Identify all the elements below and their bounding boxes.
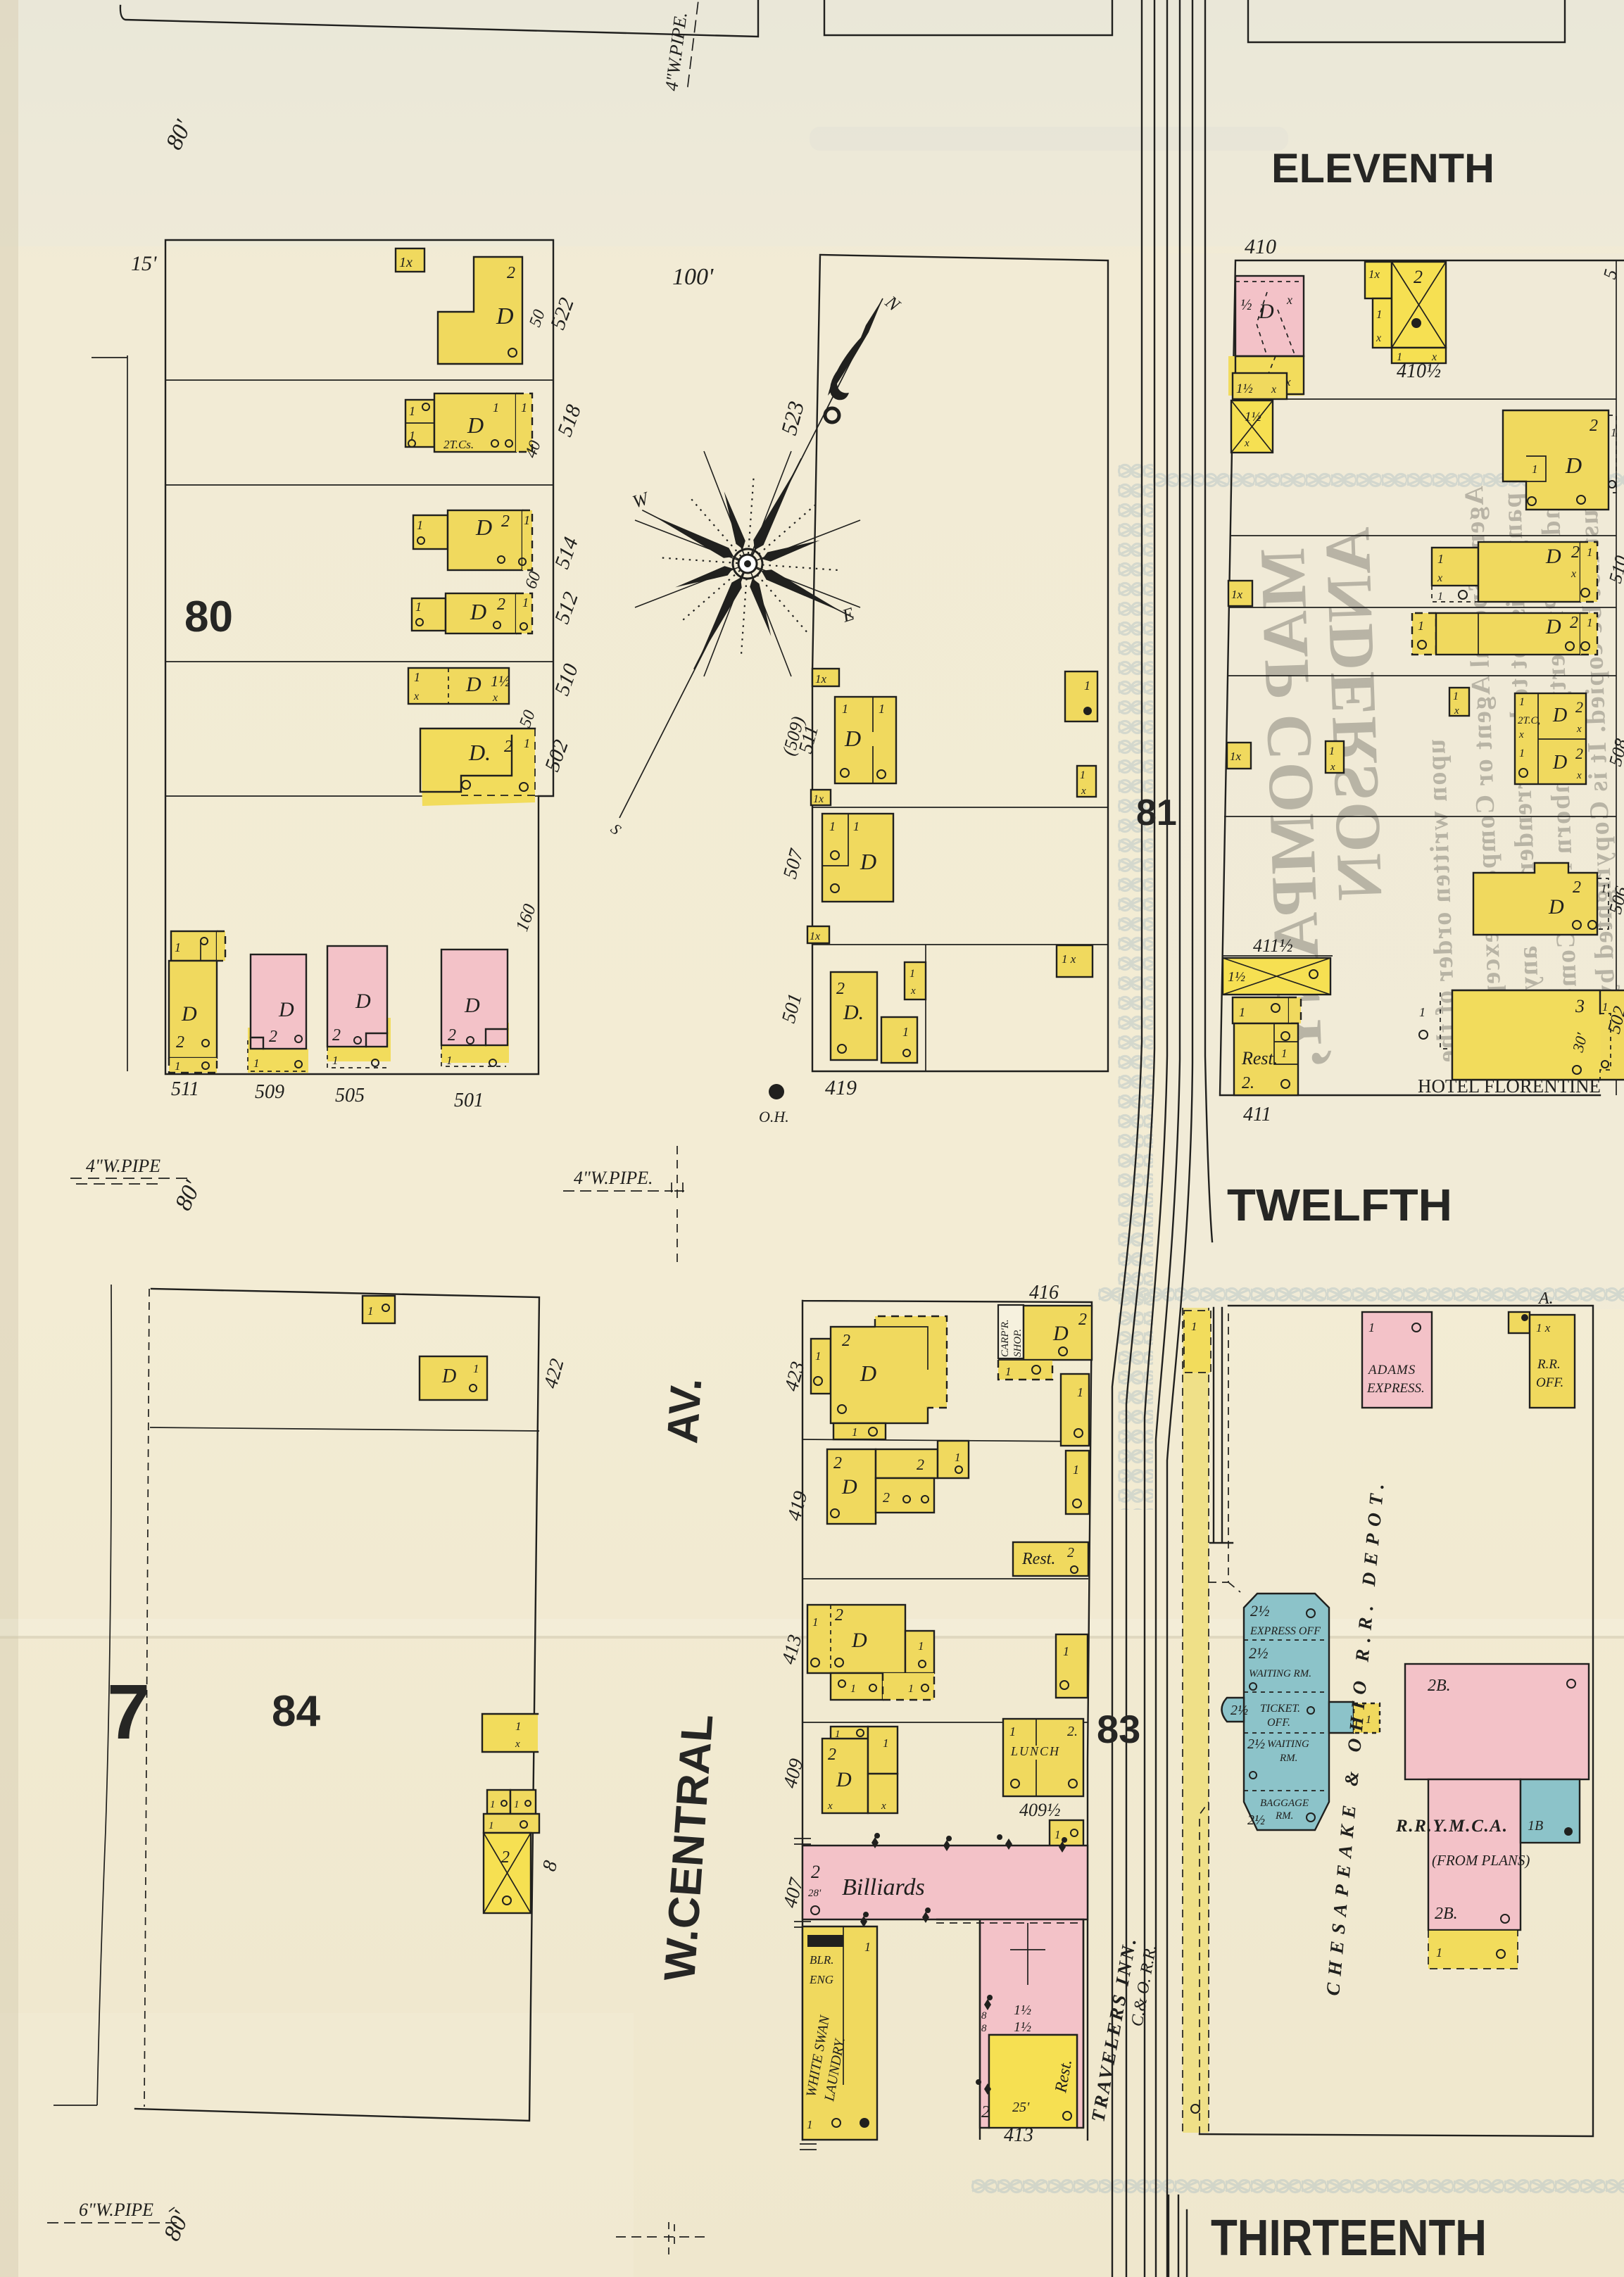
svg-text:D: D xyxy=(355,990,371,1013)
svg-text:511: 511 xyxy=(171,1078,199,1100)
svg-text:RM.: RM. xyxy=(1275,1810,1293,1822)
svg-text:1: 1 xyxy=(842,702,848,716)
svg-text:2: 2 xyxy=(1575,698,1583,716)
svg-text:2.: 2. xyxy=(1242,1074,1254,1092)
svg-text:1: 1 xyxy=(955,1451,961,1464)
svg-text:ENG: ENG xyxy=(809,1973,833,1986)
svg-text:BAGGAGE: BAGGAGE xyxy=(1260,1798,1309,1809)
svg-text:1: 1 xyxy=(1519,696,1525,708)
svg-text:1: 1 xyxy=(1073,1463,1079,1477)
svg-text:ELEVENTH: ELEVENTH xyxy=(1271,146,1494,191)
svg-text:1: 1 xyxy=(1437,591,1443,603)
svg-text:2B.: 2B. xyxy=(1428,1677,1451,1695)
svg-text:1: 1 xyxy=(1084,679,1090,693)
svg-text:411½: 411½ xyxy=(1253,935,1293,956)
svg-text:D: D xyxy=(860,849,876,874)
svg-text:2: 2 xyxy=(1570,614,1578,632)
svg-text:TWELFTH: TWELFTH xyxy=(1227,1180,1452,1230)
svg-text:THIRTEENTH: THIRTEENTH xyxy=(1211,2210,1487,2266)
svg-text:1: 1 xyxy=(1437,552,1444,566)
svg-text:1: 1 xyxy=(522,595,529,610)
svg-text:2: 2 xyxy=(504,738,512,756)
svg-text:1: 1 xyxy=(1419,1005,1425,1019)
svg-text:2½: 2½ xyxy=(1250,1602,1270,1620)
svg-text:R.R.Y.M.C.A.: R.R.Y.M.C.A. xyxy=(1395,1817,1507,1836)
svg-text:D: D xyxy=(1565,453,1582,478)
svg-text:1: 1 xyxy=(367,1304,374,1318)
svg-text:100': 100' xyxy=(672,264,714,290)
svg-text:1x: 1x xyxy=(813,793,824,805)
svg-text:D: D xyxy=(475,515,492,540)
svg-text:2T.C,: 2T.C, xyxy=(1518,715,1540,726)
svg-text:D: D xyxy=(464,994,480,1017)
svg-text:1 x: 1 x xyxy=(1062,952,1076,966)
svg-text:1: 1 xyxy=(852,1425,858,1439)
svg-text:505: 505 xyxy=(335,1085,365,1106)
svg-text:409½: 409½ xyxy=(1019,1800,1061,1820)
svg-text:1: 1 xyxy=(446,1054,453,1067)
svg-text:1: 1 xyxy=(1009,1724,1016,1739)
svg-text:D: D xyxy=(181,1002,197,1026)
svg-text:D: D xyxy=(836,1768,852,1791)
svg-text:4"W.PIPE: 4"W.PIPE xyxy=(86,1156,160,1176)
svg-text:1: 1 xyxy=(1191,1320,1197,1333)
svg-text:D.: D. xyxy=(843,1001,864,1024)
svg-text:2: 2 xyxy=(835,1606,843,1625)
svg-text:OFF.: OFF. xyxy=(1267,1717,1290,1729)
svg-text:1: 1 xyxy=(332,1054,339,1067)
svg-text:1: 1 xyxy=(850,1683,856,1695)
svg-text:1: 1 xyxy=(1418,619,1424,633)
svg-text:(FROM PLANS): (FROM PLANS) xyxy=(1432,1852,1530,1869)
svg-text:501: 501 xyxy=(454,1090,484,1111)
svg-text:1½: 1½ xyxy=(1014,2002,1031,2018)
svg-text:1: 1 xyxy=(1376,308,1383,321)
svg-text:419: 419 xyxy=(825,1076,857,1099)
svg-text:D: D xyxy=(496,303,514,329)
svg-text:2: 2 xyxy=(176,1033,184,1052)
svg-text:2: 2 xyxy=(501,1848,510,1867)
svg-text:1: 1 xyxy=(473,1362,479,1375)
svg-text:1: 1 xyxy=(1005,1365,1012,1378)
svg-text:A.: A. xyxy=(1537,1289,1554,1308)
svg-text:1: 1 xyxy=(417,518,423,532)
svg-text:2½: 2½ xyxy=(1247,1812,1265,1828)
svg-text:x: x xyxy=(1576,724,1582,735)
svg-text:1: 1 xyxy=(414,670,420,684)
svg-text:1: 1 xyxy=(1587,616,1593,629)
svg-text:6"W.PIPE: 6"W.PIPE xyxy=(79,2200,153,2220)
svg-text:x: x xyxy=(1576,770,1582,781)
svg-text:1: 1 xyxy=(1602,1000,1609,1014)
svg-text:D: D xyxy=(841,1475,857,1499)
svg-text:1: 1 xyxy=(253,1056,260,1070)
svg-text:1: 1 xyxy=(835,1729,841,1740)
svg-text:x: x xyxy=(1437,572,1442,584)
svg-text:1: 1 xyxy=(409,404,415,418)
svg-text:1x: 1x xyxy=(399,255,413,270)
svg-text:x: x xyxy=(1376,332,1381,344)
svg-text:1x: 1x xyxy=(1368,267,1380,281)
svg-text:1x: 1x xyxy=(1230,750,1242,763)
svg-text:2B.: 2B. xyxy=(1435,1905,1458,1923)
svg-text:1: 1 xyxy=(515,1720,522,1733)
svg-text:x: x xyxy=(1518,729,1524,740)
svg-text:D: D xyxy=(1052,1322,1069,1345)
svg-text:x: x xyxy=(492,692,498,704)
svg-text:BLR.: BLR. xyxy=(810,1953,833,1967)
svg-text:81: 81 xyxy=(1136,793,1177,833)
svg-text:D: D xyxy=(844,726,861,751)
svg-text:x: x xyxy=(515,1739,520,1750)
svg-text:D: D xyxy=(1552,752,1567,774)
svg-text:84: 84 xyxy=(272,1687,320,1736)
svg-text:x: x xyxy=(1330,762,1335,773)
svg-text:1: 1 xyxy=(909,968,915,980)
svg-text:509: 509 xyxy=(255,1081,284,1103)
svg-text:2: 2 xyxy=(1078,1311,1087,1329)
svg-text:1x: 1x xyxy=(815,672,827,686)
svg-text:2: 2 xyxy=(811,1862,820,1882)
svg-text:2: 2 xyxy=(883,1490,890,1506)
svg-text:D: D xyxy=(470,599,486,624)
svg-text:2½: 2½ xyxy=(1247,1736,1265,1752)
svg-text:WAITING: WAITING xyxy=(1267,1739,1309,1750)
svg-text:x: x xyxy=(1286,293,1292,307)
svg-text:1: 1 xyxy=(864,1940,871,1954)
svg-text:x: x xyxy=(1454,705,1459,717)
svg-text:1: 1 xyxy=(1436,1945,1442,1960)
svg-text:8: 8 xyxy=(981,2023,987,2034)
svg-text:2: 2 xyxy=(448,1026,456,1045)
svg-text:x: x xyxy=(827,1800,833,1812)
svg-text:OFF.: OFF. xyxy=(1536,1375,1563,1390)
svg-text:ADAMS: ADAMS xyxy=(1367,1363,1416,1377)
svg-text:1: 1 xyxy=(1077,1385,1083,1399)
svg-text:1½: 1½ xyxy=(1228,969,1245,985)
svg-text:2: 2 xyxy=(1573,878,1581,897)
svg-text:EXPRESS.: EXPRESS. xyxy=(1366,1381,1425,1396)
svg-text:D: D xyxy=(1545,615,1561,638)
svg-text:½: ½ xyxy=(1240,296,1252,313)
svg-text:2: 2 xyxy=(981,2103,990,2121)
svg-text:1: 1 xyxy=(514,1799,520,1810)
svg-text:2: 2 xyxy=(497,595,505,614)
svg-text:1: 1 xyxy=(175,1059,181,1073)
svg-text:1: 1 xyxy=(853,819,860,833)
svg-text:x: x xyxy=(1081,786,1086,797)
svg-text:2: 2 xyxy=(1067,1545,1074,1560)
svg-text:x: x xyxy=(881,1800,886,1812)
svg-text:D: D xyxy=(1548,895,1564,919)
svg-text:Rest.: Rest. xyxy=(1021,1550,1055,1568)
svg-text:1B: 1B xyxy=(1528,1818,1543,1834)
svg-text:WAITING RM.: WAITING RM. xyxy=(1249,1668,1311,1679)
svg-text:SHOP.: SHOP. xyxy=(1012,1329,1024,1357)
svg-text:R.R.: R.R. xyxy=(1537,1357,1561,1372)
svg-text:1½: 1½ xyxy=(1245,410,1261,424)
svg-text:x: x xyxy=(1571,568,1576,580)
svg-text:28': 28' xyxy=(808,1888,822,1899)
svg-text:2: 2 xyxy=(1575,745,1583,762)
svg-text:2: 2 xyxy=(833,1454,842,1472)
svg-text:15': 15' xyxy=(131,252,157,275)
svg-text:RM.: RM. xyxy=(1279,1753,1297,1764)
svg-text:1 x: 1 x xyxy=(1536,1321,1551,1335)
svg-text:AV.: AV. xyxy=(658,1376,711,1445)
svg-text:1: 1 xyxy=(1368,1320,1375,1335)
svg-text:2: 2 xyxy=(269,1028,277,1046)
svg-text:1: 1 xyxy=(490,1799,496,1810)
svg-text:2: 2 xyxy=(828,1746,836,1764)
svg-text:25': 25' xyxy=(1012,2100,1030,2115)
svg-text:80: 80 xyxy=(184,593,233,641)
svg-text:1: 1 xyxy=(175,940,181,954)
svg-text:D.: D. xyxy=(468,740,491,765)
svg-text:2: 2 xyxy=(1590,417,1598,435)
svg-text:D: D xyxy=(860,1361,876,1386)
svg-text:1: 1 xyxy=(1453,690,1459,702)
svg-text:2½: 2½ xyxy=(1230,1703,1248,1718)
svg-text:1: 1 xyxy=(1281,1047,1288,1060)
svg-text:x: x xyxy=(1271,384,1276,396)
svg-text:7: 7 xyxy=(107,1669,150,1755)
svg-text:1: 1 xyxy=(1601,882,1607,895)
svg-text:ANDERSON: ANDERSON xyxy=(1311,526,1396,903)
svg-text:1: 1 xyxy=(493,400,499,415)
svg-text:1: 1 xyxy=(807,2118,813,2131)
svg-text:1: 1 xyxy=(489,1820,494,1831)
svg-text:2: 2 xyxy=(332,1026,341,1045)
svg-text:1: 1 xyxy=(1080,769,1085,781)
svg-text:1: 1 xyxy=(1519,748,1525,759)
svg-text:1: 1 xyxy=(524,513,530,527)
svg-text:x: x xyxy=(1244,438,1250,449)
svg-text:Rest.: Rest. xyxy=(1241,1048,1278,1068)
svg-text:D: D xyxy=(1552,705,1567,726)
svg-text:1: 1 xyxy=(1532,462,1538,476)
svg-text:1: 1 xyxy=(812,1615,819,1629)
svg-text:D: D xyxy=(851,1629,867,1652)
svg-text:2: 2 xyxy=(842,1332,850,1350)
svg-text:HOTEL FLORENTINE: HOTEL FLORENTINE xyxy=(1418,1076,1601,1097)
svg-text:1: 1 xyxy=(883,1736,889,1750)
svg-text:410½: 410½ xyxy=(1397,360,1441,382)
svg-text:1: 1 xyxy=(1611,426,1617,439)
svg-text:2: 2 xyxy=(501,512,510,531)
svg-text:1: 1 xyxy=(1239,1005,1245,1019)
svg-text:1: 1 xyxy=(524,736,530,750)
svg-text:LUNCH: LUNCH xyxy=(1010,1744,1060,1758)
svg-text:410: 410 xyxy=(1245,235,1276,258)
svg-text:1: 1 xyxy=(1063,1644,1069,1658)
svg-text:1: 1 xyxy=(1329,745,1335,757)
svg-text:2: 2 xyxy=(1571,543,1580,562)
svg-text:1: 1 xyxy=(1587,545,1593,559)
svg-text:x: x xyxy=(910,985,916,997)
svg-text:1x: 1x xyxy=(810,931,820,942)
svg-text:1: 1 xyxy=(879,702,885,716)
svg-text:2½: 2½ xyxy=(1249,1644,1269,1662)
svg-text:1½: 1½ xyxy=(491,672,510,690)
svg-text:2: 2 xyxy=(507,264,515,282)
svg-text:3: 3 xyxy=(1575,996,1585,1016)
svg-text:D: D xyxy=(467,412,484,438)
svg-text:2: 2 xyxy=(1414,267,1423,287)
svg-text:D: D xyxy=(278,998,294,1021)
svg-text:1: 1 xyxy=(902,1025,909,1039)
svg-text:O.H.: O.H. xyxy=(759,1108,789,1125)
svg-text:1: 1 xyxy=(908,1683,914,1695)
svg-text:1½: 1½ xyxy=(1014,2019,1031,2035)
svg-text:1½: 1½ xyxy=(1236,381,1253,396)
svg-text:EXPRESS OFF: EXPRESS OFF xyxy=(1250,1625,1321,1637)
svg-text:Billiards: Billiards xyxy=(842,1874,925,1900)
svg-text:1: 1 xyxy=(1055,1828,1061,1841)
svg-text:1: 1 xyxy=(829,819,836,833)
svg-text:2: 2 xyxy=(836,980,845,998)
svg-text:D: D xyxy=(1258,300,1274,323)
svg-text:1: 1 xyxy=(521,400,527,415)
svg-text:2: 2 xyxy=(917,1456,924,1473)
svg-text:416: 416 xyxy=(1029,1282,1059,1304)
svg-text:1x: 1x xyxy=(1231,588,1243,601)
svg-text:8: 8 xyxy=(981,2010,987,2021)
svg-text:1: 1 xyxy=(918,1639,924,1653)
svg-text:TICKET.: TICKET. xyxy=(1260,1703,1300,1715)
svg-text:x: x xyxy=(413,690,419,702)
svg-text:413: 413 xyxy=(1004,2124,1033,2146)
svg-text:1: 1 xyxy=(415,600,422,614)
svg-text:411: 411 xyxy=(1243,1104,1271,1125)
svg-text:2.: 2. xyxy=(1067,1724,1078,1739)
svg-text:4"W.PIPE.: 4"W.PIPE. xyxy=(574,1168,653,1188)
svg-text:D: D xyxy=(441,1365,456,1387)
svg-text:1: 1 xyxy=(815,1349,822,1363)
svg-text:CARP'R.: CARP'R. xyxy=(1000,1319,1011,1357)
svg-text:83: 83 xyxy=(1097,1707,1140,1751)
svg-text:D: D xyxy=(465,673,481,696)
svg-text:D: D xyxy=(1545,545,1561,568)
svg-text:2T.Cs.: 2T.Cs. xyxy=(443,438,474,451)
